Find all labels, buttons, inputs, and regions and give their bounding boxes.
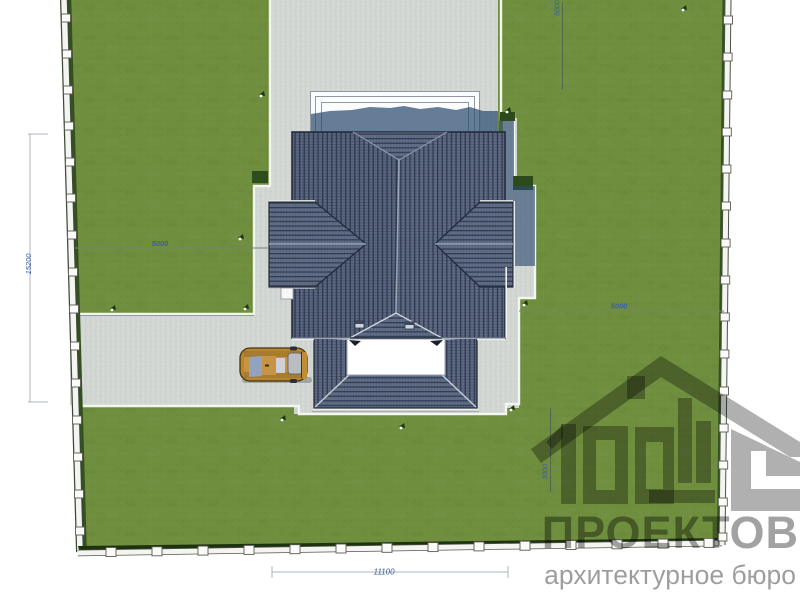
svg-text:ПРОЕКТОВ: ПРОЕКТОВ — [542, 507, 799, 558]
svg-text:15200: 15200 — [24, 253, 33, 275]
svg-text:11100: 11100 — [373, 568, 395, 577]
svg-text:5000: 5000 — [152, 239, 170, 248]
svg-text:3000: 3000 — [543, 464, 550, 480]
svg-text:5000: 5000 — [555, 0, 562, 16]
svg-text:5000: 5000 — [611, 302, 629, 311]
svg-text:архитектурное бюро: архитектурное бюро — [544, 560, 796, 590]
